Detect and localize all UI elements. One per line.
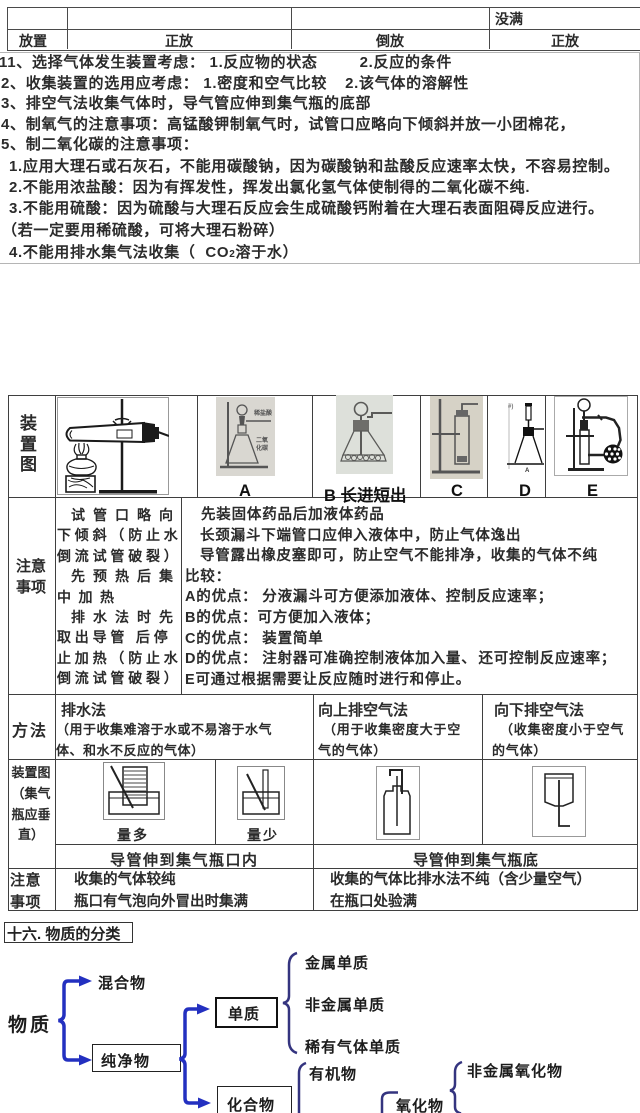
svg-text:#): #) [508, 404, 513, 410]
svg-text:二氧: 二氧 [256, 436, 268, 444]
svg-text:稀盐酸: 稀盐酸 [253, 409, 273, 417]
svg-text:化碳: 化碳 [256, 444, 269, 452]
svg-text:A: A [525, 468, 530, 474]
